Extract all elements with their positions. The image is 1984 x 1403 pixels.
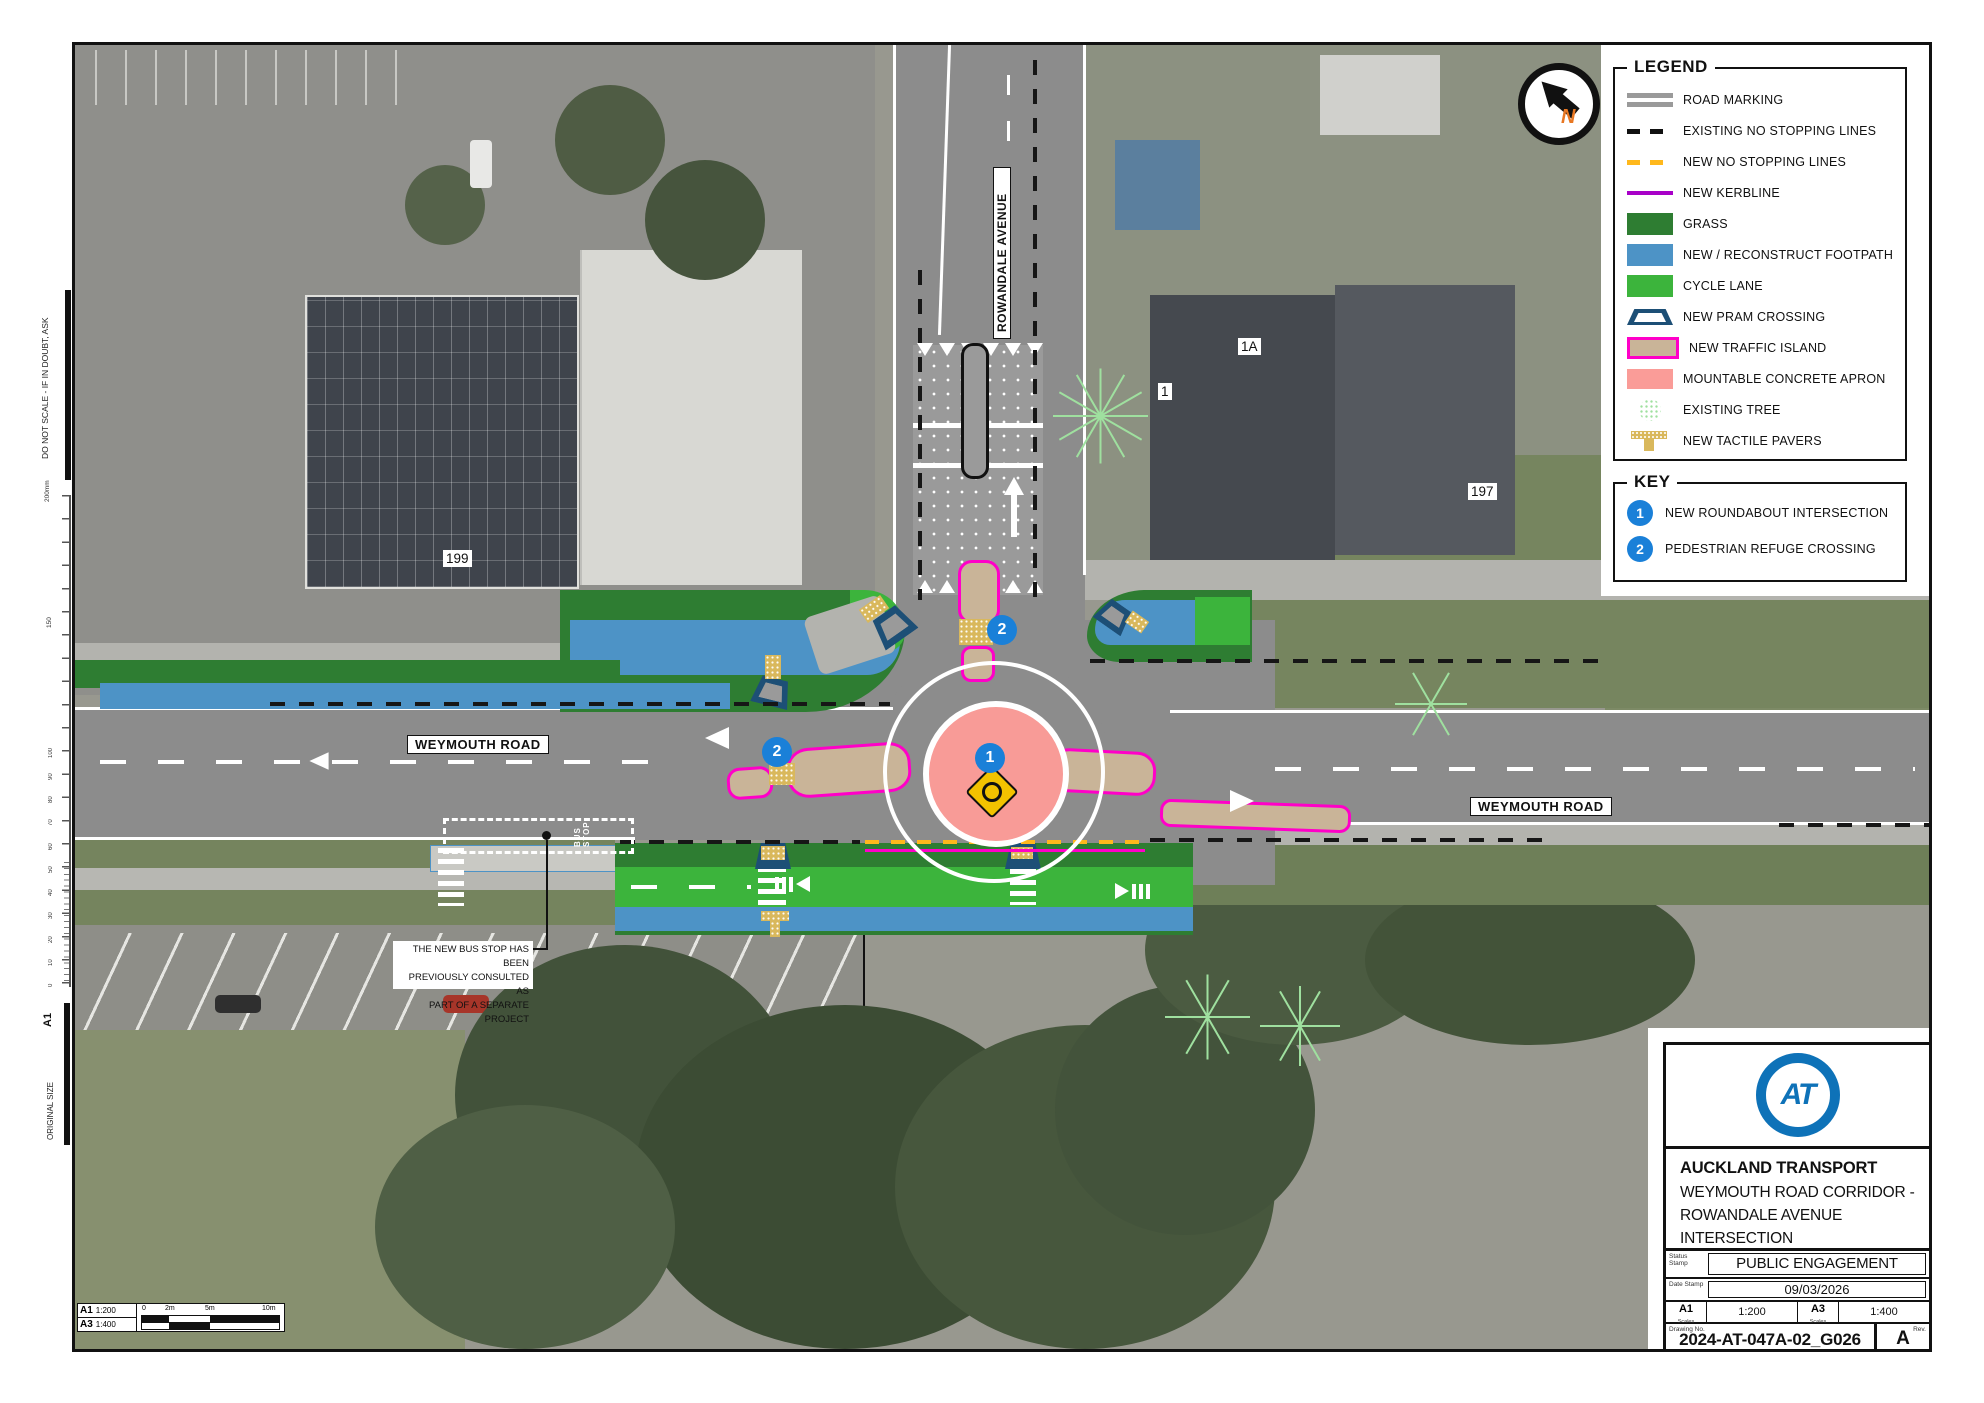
do-not-scale-note: DO NOT SCALE - IF IN DOUBT, ASK xyxy=(40,293,50,483)
margin-bar-top xyxy=(65,290,71,480)
legend-label: EXISTING NO STOPPING LINES xyxy=(1683,124,1876,138)
legend-item: GRASS xyxy=(1627,213,1905,235)
road-label-weymouth-east: WEYMOUTH ROAD xyxy=(1470,797,1612,816)
legend-item: EXISTING NO STOPPING LINES xyxy=(1627,120,1905,142)
legend-item: NEW / RECONSTRUCT FOOTPATH xyxy=(1627,244,1905,266)
roundabout-sign-glyph xyxy=(978,778,1006,806)
ruler-label: 30 xyxy=(48,905,54,919)
house-roof-blue xyxy=(1115,140,1200,230)
parked-car-dark xyxy=(215,995,261,1013)
median-island-outline xyxy=(961,343,989,479)
tactile-pavers-t-bar xyxy=(761,911,789,921)
drawing-row: Drawing No. 2024-AT-047A-02_G026 Rev. A xyxy=(1666,1324,1929,1349)
giveway-triangle xyxy=(1005,343,1021,356)
existing-no-stopping-nw xyxy=(270,702,890,706)
scale-a1-value: 1:200 xyxy=(96,1306,116,1315)
legend-item: CYCLE LANE xyxy=(1627,275,1905,297)
legend-label: CYCLE LANE xyxy=(1683,279,1763,293)
scale-tick-2m: 2m xyxy=(165,1305,175,1312)
grass-swatch xyxy=(1627,213,1673,235)
scale-segment xyxy=(142,1323,169,1329)
marker-roundabout: 1 xyxy=(975,743,1005,773)
giveway-triangle xyxy=(939,580,955,593)
building-white-roof xyxy=(580,250,802,585)
legend-title: LEGEND xyxy=(1627,57,1715,77)
tree-mass xyxy=(375,1105,675,1349)
tactile-pavers-t-stem xyxy=(770,921,780,937)
rev-value: A xyxy=(1896,1328,1910,1349)
key-item: 1 NEW ROUNDABOUT INTERSECTION xyxy=(1627,500,1905,526)
scale-segment xyxy=(169,1316,210,1322)
a1-scale-value: 1:200 xyxy=(1707,1302,1798,1322)
drawing-sheet: { "colors":{"grass":"#2e7d32","footpath"… xyxy=(0,0,1984,1403)
project-line: INTERSECTION xyxy=(1680,1227,1915,1250)
scale-tick-5m: 5m xyxy=(205,1305,215,1312)
plan-map: BUS STOP THE NEW BUS STOP HAS BEEN PREVI… xyxy=(75,45,1929,1349)
scale-a3-value: 1:400 xyxy=(96,1320,116,1329)
date-row: Date Stamp 09/03/2026 xyxy=(1666,1279,1929,1302)
scale-row-a3: A3 1:400 xyxy=(78,1318,136,1331)
date-value: 09/03/2026 xyxy=(1708,1281,1926,1298)
legend-label: MOUNTABLE CONCRETE APRON xyxy=(1683,372,1886,386)
cycle-chevron xyxy=(1115,883,1129,899)
scale-row-a1: A1 1:200 xyxy=(78,1304,136,1318)
key-box: 1 NEW ROUNDABOUT INTERSECTION 2 PEDESTRI… xyxy=(1613,482,1907,582)
existing-tree-symbol xyxy=(1165,973,1250,1058)
rev-label: Rev. xyxy=(1913,1326,1926,1333)
cycle-chevron xyxy=(796,876,810,892)
footpath-swatch xyxy=(1627,244,1673,266)
legend-label: NEW KERBLINE xyxy=(1683,186,1780,200)
legend-item: NEW NO STOPPING LINES xyxy=(1627,151,1905,173)
legend-label: EXISTING TREE xyxy=(1683,403,1781,417)
project-line: ROWANDALE AVENUE xyxy=(1680,1204,1915,1227)
legend-item: EXISTING TREE xyxy=(1627,399,1905,421)
legend-label: ROAD MARKING xyxy=(1683,93,1783,107)
existing-no-stopping-far-east xyxy=(1779,823,1929,827)
tree-spoke xyxy=(1299,986,1301,1066)
ruler-fine-ticks xyxy=(64,862,69,985)
sheet-size-label: A1 xyxy=(42,1003,54,1027)
original-size-label: ORIGINAL SIZE xyxy=(46,1030,55,1140)
tactile-pavers xyxy=(761,846,785,860)
cycle-symbol xyxy=(1115,883,1150,899)
cycle-lane-swatch xyxy=(1627,275,1673,297)
scale-table: A1 1:200 A3 1:400 xyxy=(77,1303,137,1332)
ruler-label: 80 xyxy=(48,789,54,803)
logo-cell: AT xyxy=(1666,1045,1929,1149)
cycle-lane-dashes xyxy=(631,885,751,889)
legend-item: NEW TRAFFIC ISLAND xyxy=(1627,337,1905,359)
scales-row: A1Scales 1:200 A3Scales 1:400 xyxy=(1666,1302,1929,1324)
existing-no-stopping-rowandale-west xyxy=(918,270,922,600)
road-label-weymouth-west: WEYMOUTH ROAD xyxy=(407,735,549,754)
existing-tree-symbol xyxy=(1053,367,1148,462)
scale-tick-0: 0 xyxy=(142,1305,146,1312)
new-no-stopping-swatch xyxy=(1627,160,1673,165)
key-badge-2: 2 xyxy=(1627,536,1653,562)
bus-stop-note-line: THE NEW BUS STOP HAS BEEN xyxy=(397,943,529,971)
scale-segment xyxy=(169,1323,210,1329)
centreline-east xyxy=(1275,767,1915,771)
bus-stop-note-line: PREVIOUSLY CONSULTED AS xyxy=(397,971,529,999)
a1-scale-label: A1Scales xyxy=(1666,1302,1707,1322)
ruler-top-label: 200mm xyxy=(44,478,51,502)
ruler-label: 40 xyxy=(48,882,54,896)
scale-segment xyxy=(210,1323,279,1329)
legend-item: ROAD MARKING xyxy=(1627,89,1905,111)
ruler-line xyxy=(69,495,71,987)
grass-berm-sw2 xyxy=(75,890,615,925)
parking-stripes-top xyxy=(95,50,405,105)
status-row: Status Stamp PUBLIC ENGAGEMENT xyxy=(1666,1251,1929,1279)
a3-scale-value: 1:400 xyxy=(1839,1302,1929,1322)
scale-a3: A3 xyxy=(78,1319,93,1330)
zebra-crossing-mid xyxy=(758,867,786,909)
ruler-label: 10 xyxy=(48,952,54,966)
marker-refuge-west: 2 xyxy=(762,737,792,767)
scale-ruler: 0 2m 5m 10m xyxy=(137,1303,285,1332)
house-roof-light xyxy=(1320,55,1440,135)
status-label: Status Stamp xyxy=(1666,1251,1705,1277)
ruler-label: 90 xyxy=(48,766,54,780)
legend-label: NEW TACTILE PAVERS xyxy=(1683,434,1822,448)
existing-no-stopping-ne xyxy=(1090,659,1610,663)
at-logo-text: AT xyxy=(1781,1078,1815,1112)
at-logo-icon: AT xyxy=(1756,1053,1840,1137)
traffic-island-west-b xyxy=(726,765,774,800)
marker-refuge-north: 2 xyxy=(987,615,1017,645)
scale-tick-10m: 10m xyxy=(262,1305,276,1312)
project-info-cell: AUCKLAND TRANSPORT WEYMOUTH ROAD CORRIDO… xyxy=(1666,1149,1929,1251)
traffic-island-swatch xyxy=(1627,337,1679,359)
date-label: Date Stamp xyxy=(1666,1279,1705,1300)
ruler-label: 20 xyxy=(48,929,54,943)
straight-arrow-stem xyxy=(1011,495,1017,537)
zebra-crossing-west xyxy=(438,848,464,906)
a3-scale-label: A3Scales xyxy=(1798,1302,1839,1322)
kerb-line-rowandale-west xyxy=(893,45,896,645)
north-arrow-n: N xyxy=(1561,106,1575,129)
new-footpath-south xyxy=(615,907,1193,931)
margin-bar-bottom xyxy=(64,1003,70,1145)
ruler-label: 0 xyxy=(48,975,54,987)
legend-item: MOUNTABLE CONCRETE APRON xyxy=(1627,368,1905,390)
ruler-label: 60 xyxy=(48,836,54,850)
lane-arrow-west xyxy=(309,752,328,770)
legend-item: NEW PRAM CROSSING xyxy=(1627,306,1905,328)
legend-label: NEW PRAM CROSSING xyxy=(1683,310,1825,324)
scale-bar-a1-strip xyxy=(141,1315,280,1323)
existing-tree-symbol xyxy=(1395,667,1467,739)
pram-crossing-swatch xyxy=(1627,309,1673,325)
leader-dot xyxy=(542,831,551,840)
building-solar-roof xyxy=(305,295,579,589)
key-title: KEY xyxy=(1627,472,1677,492)
bus-stop-road-marking: BUS STOP xyxy=(573,819,591,847)
status-value: PUBLIC ENGAGEMENT xyxy=(1708,1253,1926,1275)
project-line: WEYMOUTH ROAD CORRIDOR - xyxy=(1680,1181,1915,1204)
existing-no-stopping-sw xyxy=(620,840,860,844)
tree-canopy xyxy=(645,160,765,280)
parked-van xyxy=(470,140,492,188)
ruler-label: 50 xyxy=(48,859,54,873)
traffic-island-rowandale-a xyxy=(958,560,1000,624)
giveway-arrow-west xyxy=(705,727,729,749)
drawing-no-label: Drawing No. xyxy=(1669,1326,1705,1333)
legend-label: NEW TRAFFIC ISLAND xyxy=(1689,341,1826,355)
existing-no-stopping-se xyxy=(1150,838,1550,842)
new-bus-stop-box xyxy=(443,818,634,854)
road-marking-swatch xyxy=(1627,93,1673,107)
new-kerbline-swatch xyxy=(1627,191,1673,195)
grass-berm-se xyxy=(1175,845,1929,905)
property-number-1: 1 xyxy=(1158,383,1172,400)
key-label: NEW ROUNDABOUT INTERSECTION xyxy=(1665,506,1888,520)
ruler-label: 70 xyxy=(48,812,54,826)
legend-label: GRASS xyxy=(1683,217,1728,231)
kerb-line-east-top xyxy=(1170,710,1929,713)
drawing-no-cell: Drawing No. 2024-AT-047A-02_G026 xyxy=(1666,1324,1874,1349)
drawing-no-value: 2024-AT-047A-02_G026 xyxy=(1679,1330,1861,1349)
giveway-triangle xyxy=(1005,580,1021,593)
existing-no-stopping-swatch xyxy=(1627,129,1673,134)
scale-segment xyxy=(142,1316,169,1322)
road-label-rowandale: ROWANDALE AVENUE xyxy=(993,167,1011,339)
grass-berm-ne xyxy=(1250,600,1929,708)
scale-bar: A1 1:200 A3 1:400 0 2m 5m 10m xyxy=(77,1303,285,1332)
centreline-west xyxy=(100,760,660,764)
house-roof xyxy=(1335,285,1515,555)
scale-a1: A1 xyxy=(78,1305,93,1316)
tactile-pavers xyxy=(765,655,781,679)
scale-bar-a3-strip xyxy=(141,1323,280,1330)
ruler-label: 100 xyxy=(48,742,54,758)
existing-tree-swatch xyxy=(1639,399,1661,421)
rev-cell: Rev. A xyxy=(1874,1324,1929,1349)
tactile-pavers-swatch xyxy=(1627,431,1673,451)
legend-box: ROAD MARKING EXISTING NO STOPPING LINES … xyxy=(1613,67,1907,461)
existing-no-stopping-rowandale-east xyxy=(1033,60,1037,600)
legend-item: NEW TACTILE PAVERS xyxy=(1627,430,1905,452)
legend-label: NEW NO STOPPING LINES xyxy=(1683,155,1846,169)
straight-arrow-head xyxy=(1004,477,1024,495)
existing-tree-symbol xyxy=(1260,985,1340,1065)
key-item: 2 PEDESTRIAN REFUGE CROSSING xyxy=(1627,536,1905,562)
property-number-199: 199 xyxy=(443,550,472,567)
giveway-arrow-east xyxy=(1230,790,1254,812)
legend-label: NEW / RECONSTRUCT FOOTPATH xyxy=(1683,248,1893,262)
bus-stop-note-line: PART OF A SEPARATE PROJECT xyxy=(397,999,529,1027)
ruler-label-150: 150 xyxy=(46,608,53,628)
concrete-apron-swatch xyxy=(1627,369,1673,389)
tree-canopy xyxy=(555,85,665,195)
key-label: PEDESTRIAN REFUGE CROSSING xyxy=(1665,542,1876,556)
tree-spoke xyxy=(1207,974,1209,1059)
legend-item: NEW KERBLINE xyxy=(1627,182,1905,204)
kerb-line-rowandale-east xyxy=(1083,45,1086,575)
title-block: AT AUCKLAND TRANSPORT WEYMOUTH ROAD CORR… xyxy=(1663,1042,1929,1349)
bus-stop-note: THE NEW BUS STOP HAS BEEN PREVIOUSLY CON… xyxy=(393,941,533,989)
giveway-triangle xyxy=(939,343,955,356)
property-number-1a: 1A xyxy=(1238,338,1261,355)
leader-line-vertical xyxy=(546,840,548,950)
company-name: AUCKLAND TRANSPORT xyxy=(1680,1156,1915,1181)
key-badge-1: 1 xyxy=(1627,500,1653,526)
scale-segment xyxy=(210,1316,279,1322)
cycle-lane-ne xyxy=(1195,597,1250,645)
north-arrow: N xyxy=(1518,63,1600,145)
property-number-197: 197 xyxy=(1468,483,1497,500)
